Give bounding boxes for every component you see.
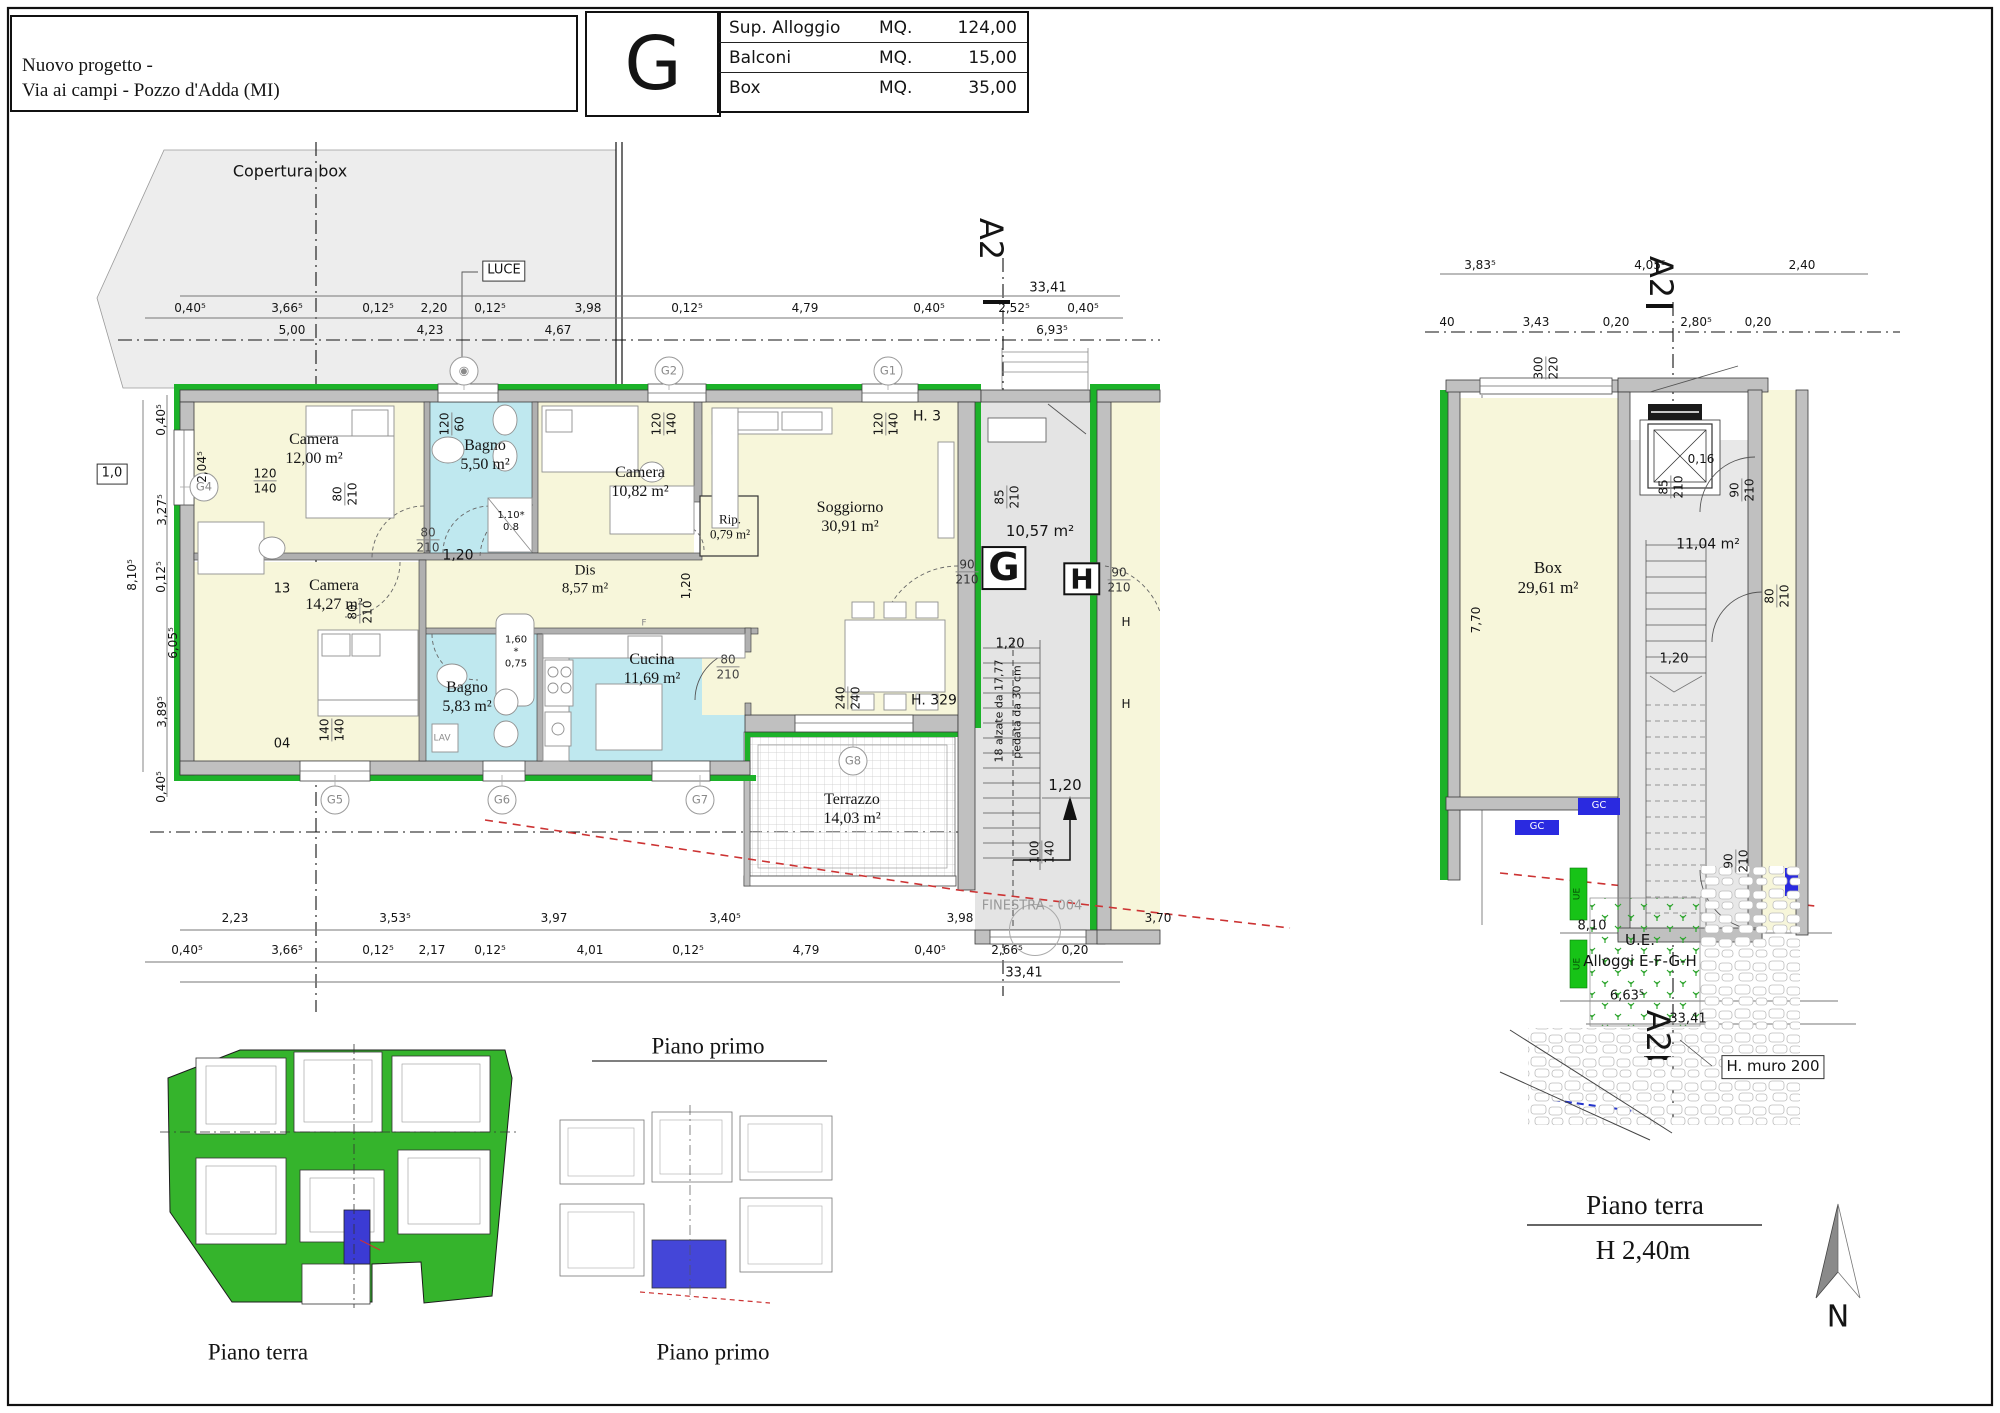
- caption-piano-terra-right: Piano terra: [1586, 1190, 1704, 1222]
- caption-piano-terra-left: Piano terra: [208, 1338, 308, 1365]
- caption-piano-primo-bottom: Piano primo: [656, 1338, 769, 1365]
- caption-piano-primo-top: Piano primo: [651, 1032, 764, 1059]
- height-caption: H 2,40m: [1596, 1235, 1691, 1267]
- captions: Piano primoPiano terraPiano primoPiano t…: [0, 0, 2000, 1413]
- north-label: N: [1827, 1299, 1849, 1334]
- drawing-sheet: Nuovo progetto - Via ai campi - Pozzo d'…: [0, 0, 2000, 1413]
